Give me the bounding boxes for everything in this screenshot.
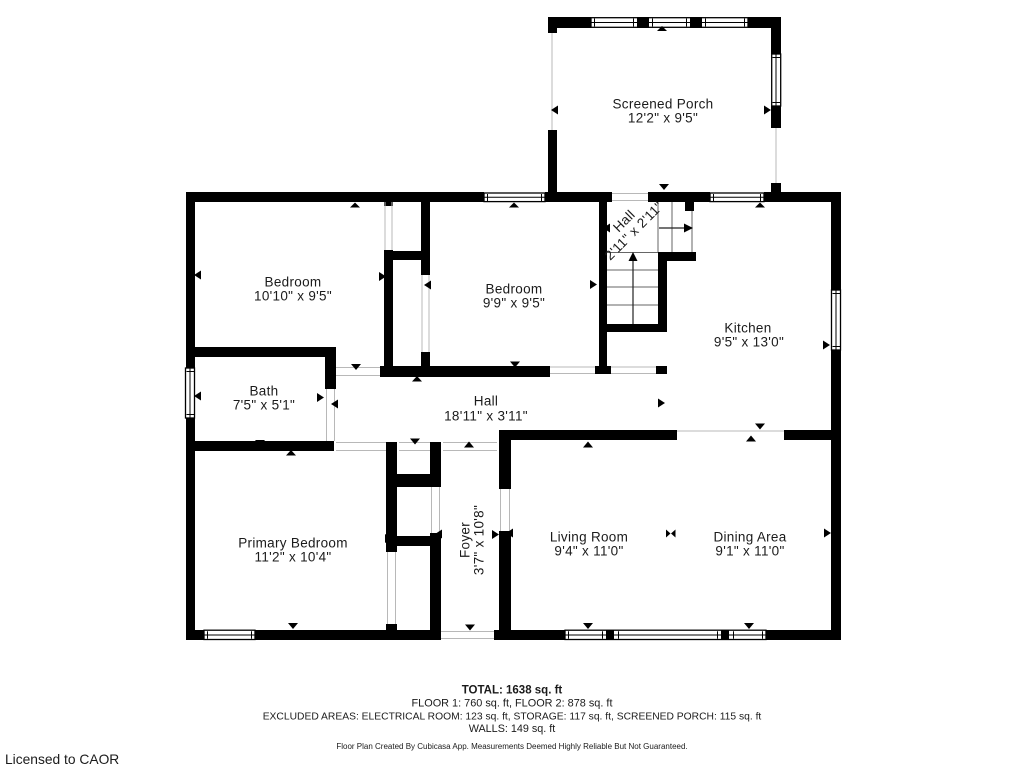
svg-text:Kitchen: Kitchen	[724, 321, 771, 336]
svg-text:Floor Plan Created By Cubicasa: Floor Plan Created By Cubicasa App. Meas…	[336, 742, 687, 751]
svg-text:11'2" x 10'4": 11'2" x 10'4"	[255, 550, 332, 565]
svg-text:Dining Area: Dining Area	[713, 530, 786, 545]
svg-text:Bath: Bath	[250, 384, 279, 399]
svg-text:9'1" x 11'0": 9'1" x 11'0"	[715, 544, 784, 559]
svg-text:Licensed to CAOR: Licensed to CAOR	[5, 752, 119, 767]
svg-text:Screened Porch: Screened Porch	[612, 97, 713, 112]
svg-text:7'5" x 5'1": 7'5" x 5'1"	[233, 398, 295, 413]
svg-text:EXCLUDED AREAS: ELECTRICAL ROO: EXCLUDED AREAS: ELECTRICAL ROOM: 123 sq.…	[263, 712, 762, 723]
svg-text:18'11" x 3'11": 18'11" x 3'11"	[444, 409, 528, 424]
svg-text:FLOOR 1: 760 sq. ft, FLOOR 2:: FLOOR 1: 760 sq. ft, FLOOR 2: 878 sq. ft	[412, 698, 613, 710]
svg-text:Bedroom: Bedroom	[486, 282, 543, 297]
svg-text:Foyer: Foyer	[458, 522, 473, 558]
svg-text:9'9" x 9'5": 9'9" x 9'5"	[483, 296, 545, 311]
svg-text:Primary Bedroom: Primary Bedroom	[238, 536, 348, 551]
svg-text:Bedroom: Bedroom	[265, 275, 322, 290]
svg-text:TOTAL: 1638 sq. ft: TOTAL: 1638 sq. ft	[462, 685, 563, 697]
svg-text:Hall: Hall	[474, 394, 498, 409]
svg-text:12'2" x 9'5": 12'2" x 9'5"	[628, 111, 698, 126]
svg-text:10'10" x 9'5": 10'10" x 9'5"	[254, 289, 332, 304]
svg-text:Living Room: Living Room	[550, 530, 628, 545]
svg-text:9'4" x 11'0": 9'4" x 11'0"	[554, 544, 623, 559]
svg-text:WALLS: 149 sq. ft: WALLS: 149 sq. ft	[469, 723, 556, 735]
svg-text:3'7" x 10'8": 3'7" x 10'8"	[472, 505, 487, 575]
svg-text:9'5" x 13'0": 9'5" x 13'0"	[714, 335, 784, 350]
